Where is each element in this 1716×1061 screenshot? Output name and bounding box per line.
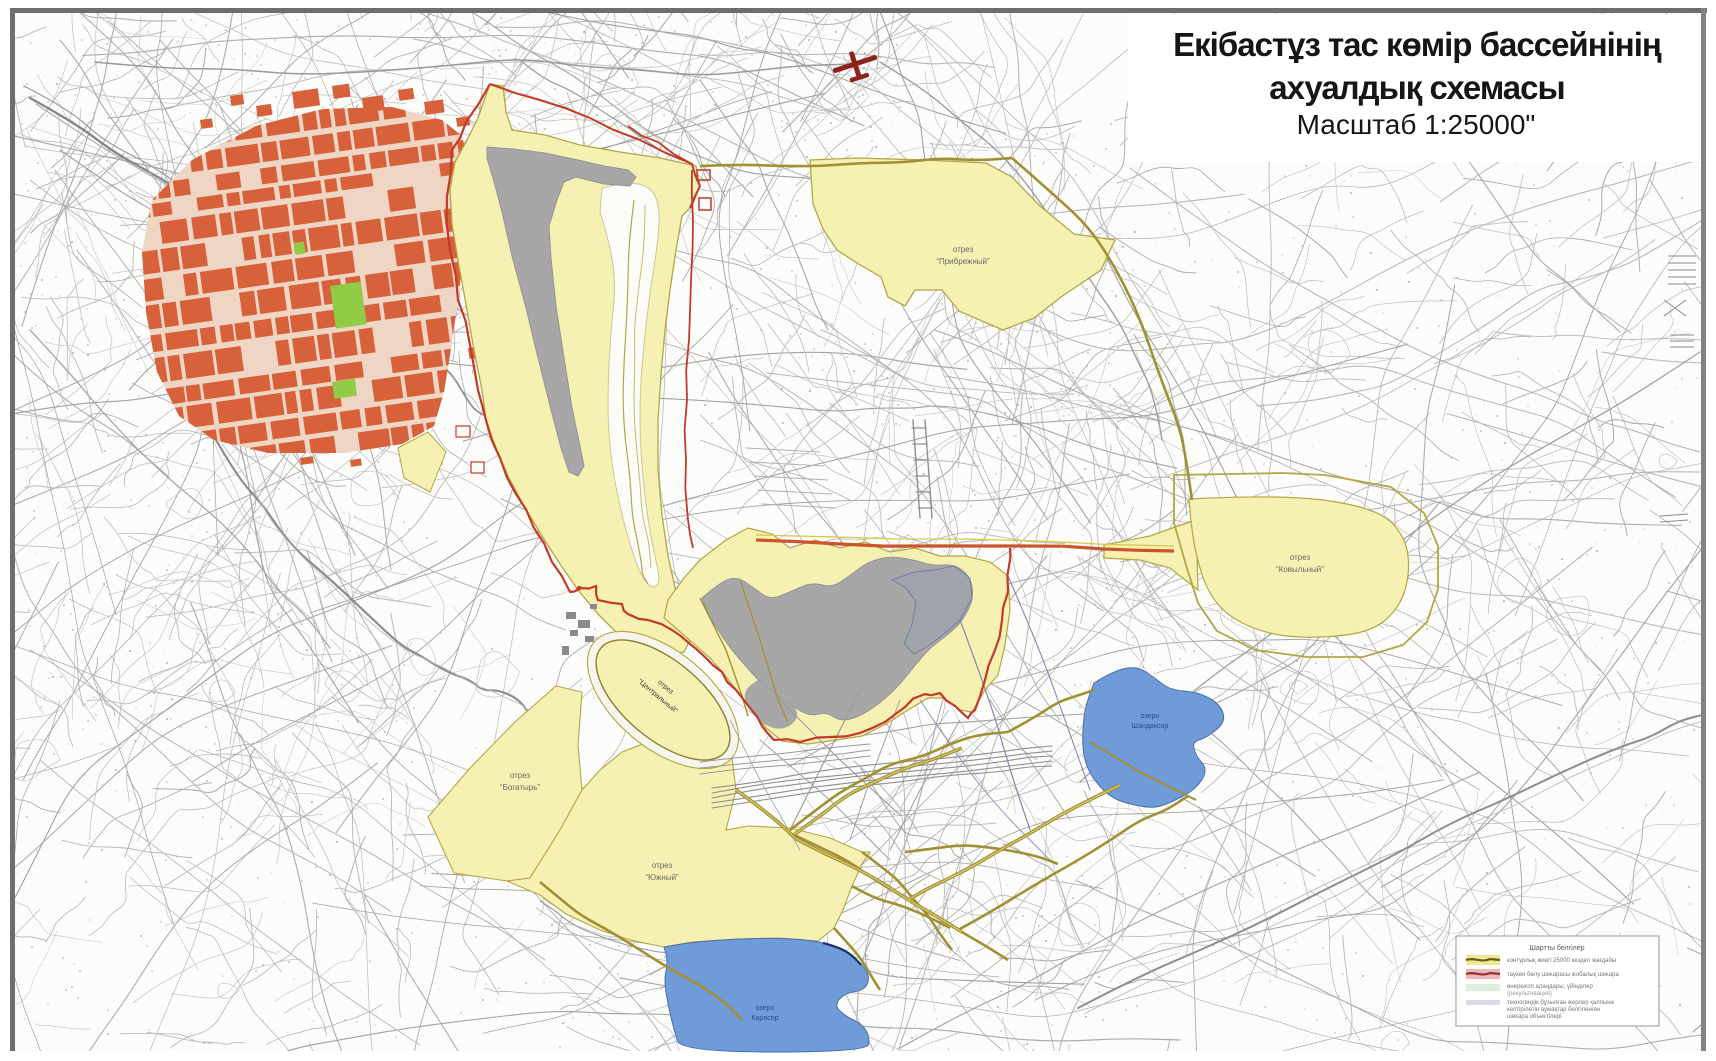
svg-text:отрез: отрез — [953, 245, 974, 254]
svg-text:“Ковыльный”: “Ковыльный” — [1276, 565, 1324, 574]
svg-text:Шандаксор: Шандаксор — [1132, 723, 1169, 730]
svg-text:отрез: отрез — [652, 861, 673, 870]
svg-text:шекара объектілері: шекара объектілері — [1507, 1014, 1562, 1020]
svg-text:“Прибрежный”: “Прибрежный” — [936, 257, 990, 266]
svg-text:(рекультивация): (рекультивация) — [1507, 991, 1552, 997]
svg-text:Екібастұз тас көмір бассейніні: Екібастұз тас көмір бассейнінің — [1173, 26, 1662, 63]
svg-text:өнеркәсіп алаңдары, үйінділер: өнеркәсіп алаңдары, үйінділер — [1507, 983, 1594, 990]
svg-text:Масштаб 1:25000": Масштаб 1:25000" — [1297, 109, 1536, 140]
svg-text:Карасор: Карасор — [751, 1015, 778, 1022]
svg-text:отрез: отрез — [1290, 553, 1311, 562]
svg-text:“Южный”: “Южный” — [645, 873, 679, 882]
svg-text:контурлық жиегі 25000 кездегі: контурлық жиегі 25000 кездегі жағдайы — [1507, 957, 1616, 964]
svg-text:таукен бөлу шекарасы жобалық ш: таукен бөлу шекарасы жобалық шекара — [1507, 972, 1619, 978]
svg-text:келтірілетін аумақтар белгілен: келтірілетін аумақтар белгіленген — [1507, 1007, 1600, 1013]
svg-text:“Богатырь”: “Богатырь” — [500, 783, 540, 792]
svg-text:техногендік бұзылған жерлер қа: техногендік бұзылған жерлер қалпына — [1507, 1000, 1615, 1006]
svg-text:отрез: отрез — [510, 771, 531, 780]
svg-text:ахуалдық схемасы: ахуалдық схемасы — [1269, 69, 1564, 106]
svg-text:Шартты белгілер: Шартты белгілер — [1529, 944, 1584, 952]
svg-text:озеро: озеро — [756, 1005, 775, 1012]
svg-text:озеро: озеро — [1141, 713, 1160, 720]
